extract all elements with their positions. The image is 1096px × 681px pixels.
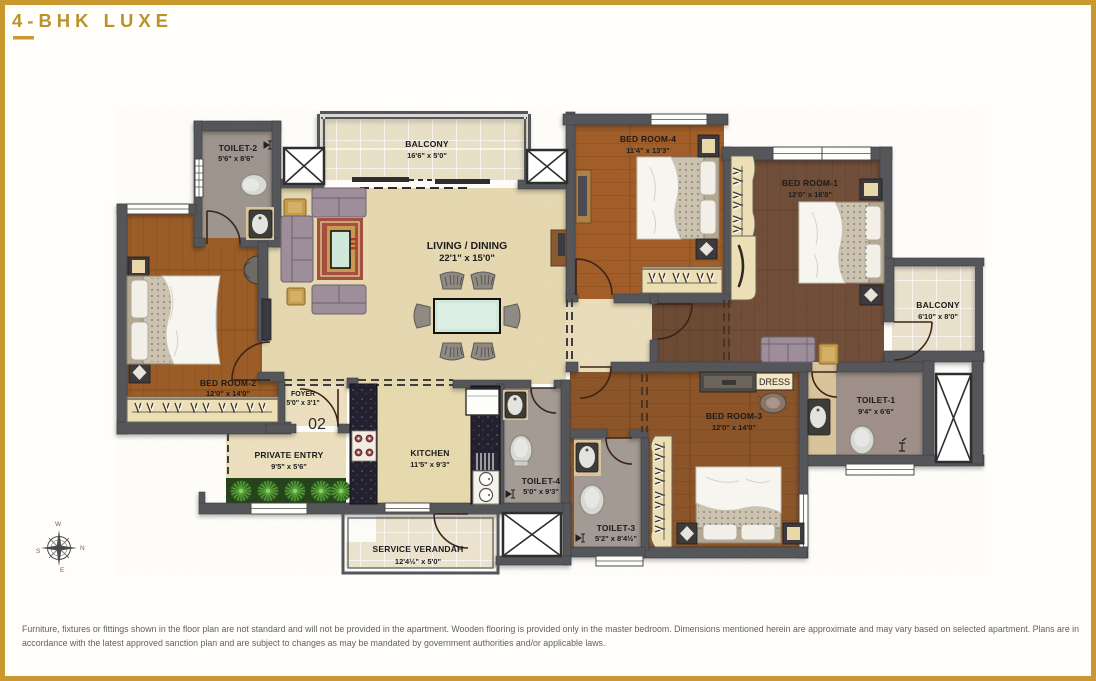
svg-text:6'10" x 8'0": 6'10" x 8'0": [918, 312, 958, 321]
svg-text:4-BHK LUXE: 4-BHK LUXE: [12, 10, 173, 31]
svg-text:5'0" x 3'1": 5'0" x 3'1": [286, 400, 319, 407]
svg-text:16'6" x 5'0": 16'6" x 5'0": [407, 151, 447, 160]
svg-text:Furniture, fixtures or fitting: Furniture, fixtures or fittings shown in…: [22, 624, 1079, 634]
svg-text:12'0" x 14'0": 12'0" x 14'0": [712, 423, 756, 432]
svg-text:TOILET-4: TOILET-4: [522, 476, 561, 486]
svg-text:S: S: [36, 548, 41, 555]
svg-text:5'6" x 8'6": 5'6" x 8'6": [218, 154, 254, 163]
svg-text:BED ROOM-4: BED ROOM-4: [620, 134, 676, 144]
svg-text:SERVICE VERANDAH: SERVICE VERANDAH: [373, 544, 464, 554]
svg-text:N: N: [80, 545, 85, 552]
svg-text:BED ROOM-1: BED ROOM-1: [782, 178, 838, 188]
svg-text:9'4" x 6'6": 9'4" x 6'6": [858, 407, 894, 416]
svg-text:02: 02: [308, 416, 326, 433]
svg-text:BALCONY: BALCONY: [405, 139, 449, 149]
svg-text:5'0" x 9'3": 5'0" x 9'3": [523, 487, 559, 496]
svg-text:12'4½" x 5'0": 12'4½" x 5'0": [395, 557, 442, 566]
svg-text:22'1" x 15'0": 22'1" x 15'0": [439, 253, 495, 264]
svg-text:TOILET-1: TOILET-1: [857, 395, 896, 405]
svg-text:TOILET-3: TOILET-3: [597, 523, 636, 533]
svg-text:FOYER: FOYER: [291, 391, 315, 398]
svg-text:W: W: [55, 521, 62, 528]
svg-text:accordance with the latest app: accordance with the latest approved sanc…: [22, 638, 605, 648]
svg-text:E: E: [60, 567, 65, 574]
svg-text:PRIVATE ENTRY: PRIVATE ENTRY: [254, 450, 323, 460]
svg-text:LIVING / DINING: LIVING / DINING: [427, 240, 508, 252]
svg-text:DRESS: DRESS: [759, 377, 790, 387]
svg-text:5'2" x 8'4½": 5'2" x 8'4½": [595, 534, 637, 543]
svg-text:BED ROOM-2: BED ROOM-2: [200, 378, 256, 388]
svg-text:TOILET-2: TOILET-2: [219, 143, 258, 153]
svg-text:12'0" x 14'0": 12'0" x 14'0": [206, 389, 250, 398]
svg-text:KITCHEN: KITCHEN: [410, 448, 449, 458]
svg-text:12'0" x 16'0": 12'0" x 16'0": [788, 190, 832, 199]
svg-text:9'5" x 5'6": 9'5" x 5'6": [271, 462, 307, 471]
svg-text:BED ROOM-3: BED ROOM-3: [706, 411, 762, 421]
svg-text:11'4" x 13'3": 11'4" x 13'3": [626, 146, 670, 155]
svg-text:11'5" x 9'3": 11'5" x 9'3": [410, 460, 450, 469]
svg-text:BALCONY: BALCONY: [916, 300, 960, 310]
